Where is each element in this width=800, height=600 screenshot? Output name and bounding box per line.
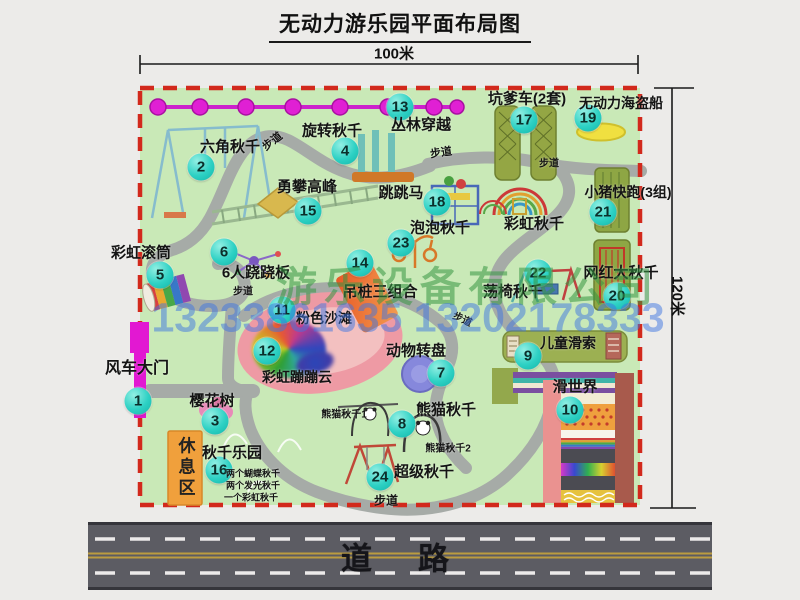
attraction-number-badge: 4	[332, 138, 359, 165]
screenshot-root: 无动力游乐园平面布局图 100米 120米 休息区 道路 1风车大门2六角秋千3…	[0, 0, 800, 600]
attraction-label: 小猪快跑(3组)	[584, 182, 671, 202]
attraction-label: 泡泡秋千	[410, 217, 470, 238]
attraction-label: 跳跳马	[378, 182, 423, 203]
rest-area-label: 休息区	[173, 437, 198, 500]
attraction-label: 六角秋千	[200, 136, 260, 157]
attraction-label: 无动力海盗船	[579, 93, 663, 113]
attraction-label: 网红大秋千	[583, 262, 658, 283]
attraction-number-badge: 14	[347, 250, 374, 277]
attraction-number-badge: 8	[389, 411, 416, 438]
dimension-width-label: 100米	[374, 43, 414, 64]
attraction-label: 粉色沙滩	[296, 308, 352, 328]
attraction-label: 坑爹车(2套)	[488, 88, 566, 109]
attraction-sublabel: 熊猫秋千2	[425, 440, 471, 455]
attraction-number-badge: 17	[511, 107, 538, 134]
attraction-label: 彩虹滚筒	[111, 242, 171, 263]
attraction-label: 樱花树	[189, 390, 234, 411]
path-label: 步道	[233, 283, 253, 298]
attraction-label: 儿童滑索	[540, 333, 596, 353]
path-label: 步道	[374, 492, 398, 509]
attraction-label: 彩虹蹦蹦云	[262, 367, 332, 387]
attraction-number-badge: 20	[604, 283, 631, 310]
attraction-label: 秋千乐园	[202, 442, 262, 463]
attraction-label: 风车大门	[105, 354, 169, 378]
attraction-number-badge: 15	[295, 198, 322, 225]
path-label: 步道	[539, 155, 559, 170]
attraction-number-badge: 18	[424, 189, 451, 216]
dimension-height-label: 120米	[668, 276, 689, 316]
attraction-label: 荡椅秋千	[483, 281, 543, 302]
attraction-number-badge: 21	[590, 199, 617, 226]
attraction-label: 滑世界	[552, 376, 597, 397]
attraction-number-badge: 10	[557, 397, 584, 424]
attraction-number-badge: 7	[428, 360, 455, 387]
attraction-number-badge: 9	[515, 343, 542, 370]
attraction-number-badge: 11	[269, 297, 296, 324]
attraction-label: 动物转盘	[386, 340, 446, 361]
path-label: 步道	[429, 143, 453, 162]
attraction-label: 超级秋千	[394, 461, 454, 482]
attraction-label: 彩虹秋千	[504, 213, 564, 234]
attraction-sublabel: 一个彩虹秋千	[224, 491, 278, 504]
page-title: 无动力游乐园平面布局图	[269, 8, 531, 43]
attraction-number-badge: 5	[147, 262, 174, 289]
attraction-label: 丛林穿越	[391, 114, 451, 135]
attraction-number-badge: 2	[188, 154, 215, 181]
attraction-sublabel: 熊猫秋千1	[321, 406, 367, 421]
attraction-label: 熊猫秋千	[416, 399, 476, 420]
attraction-label: 6人跷跷板	[222, 262, 290, 283]
attraction-label: 勇攀高峰	[277, 176, 337, 197]
attraction-label: 吊桩三组合	[342, 281, 417, 302]
attraction-number-badge: 3	[202, 408, 229, 435]
attraction-number-badge: 12	[254, 338, 281, 365]
attraction-label: 旋转秋千	[302, 120, 362, 141]
attraction-number-badge: 1	[125, 388, 152, 415]
road-label: 道路	[341, 534, 495, 579]
attraction-number-badge: 24	[367, 464, 394, 491]
